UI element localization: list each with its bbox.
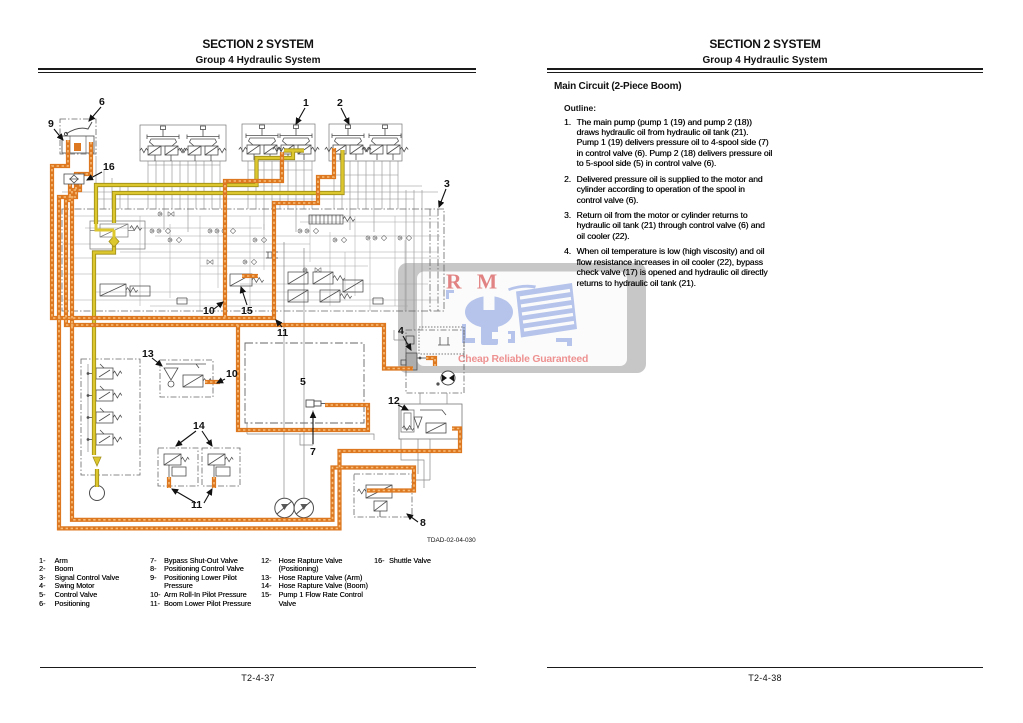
svg-text:Cheap Reliable Guaranteed: Cheap Reliable Guaranteed [458, 354, 588, 365]
svg-text:15: 15 [241, 305, 253, 317]
svg-text:10: 10 [203, 305, 215, 317]
svg-text:R M: R M [446, 270, 502, 294]
svg-text:TDAD-02-04-030: TDAD-02-04-030 [427, 537, 476, 544]
svg-text:2: 2 [337, 97, 343, 109]
svg-text:6: 6 [99, 96, 105, 108]
svg-text:11: 11 [277, 327, 288, 339]
svg-text:5: 5 [300, 376, 306, 388]
svg-text:8: 8 [420, 517, 426, 529]
svg-text:10: 10 [226, 368, 238, 380]
svg-text:1: 1 [303, 97, 309, 109]
svg-text:16: 16 [103, 161, 115, 173]
svg-text:9: 9 [48, 118, 54, 130]
svg-text:14: 14 [193, 420, 205, 432]
svg-text:4: 4 [398, 325, 404, 337]
svg-text:7: 7 [310, 446, 316, 458]
svg-text:3: 3 [444, 178, 450, 190]
